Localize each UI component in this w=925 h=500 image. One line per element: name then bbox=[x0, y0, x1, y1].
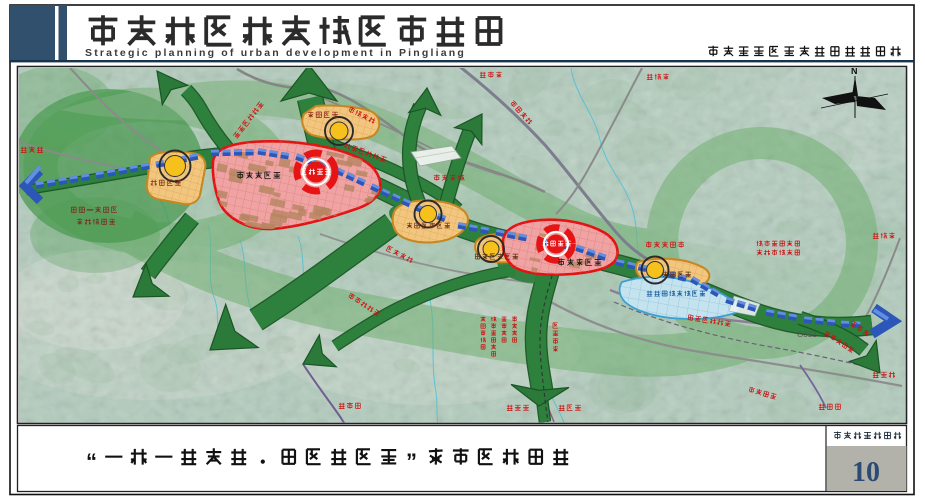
svg-text:10: 10 bbox=[852, 457, 880, 488]
svg-text:”: ” bbox=[406, 449, 417, 474]
svg-text:“: “ bbox=[86, 449, 97, 474]
svg-text:Strategic planning of urban de: Strategic planning of urban development … bbox=[85, 47, 466, 59]
